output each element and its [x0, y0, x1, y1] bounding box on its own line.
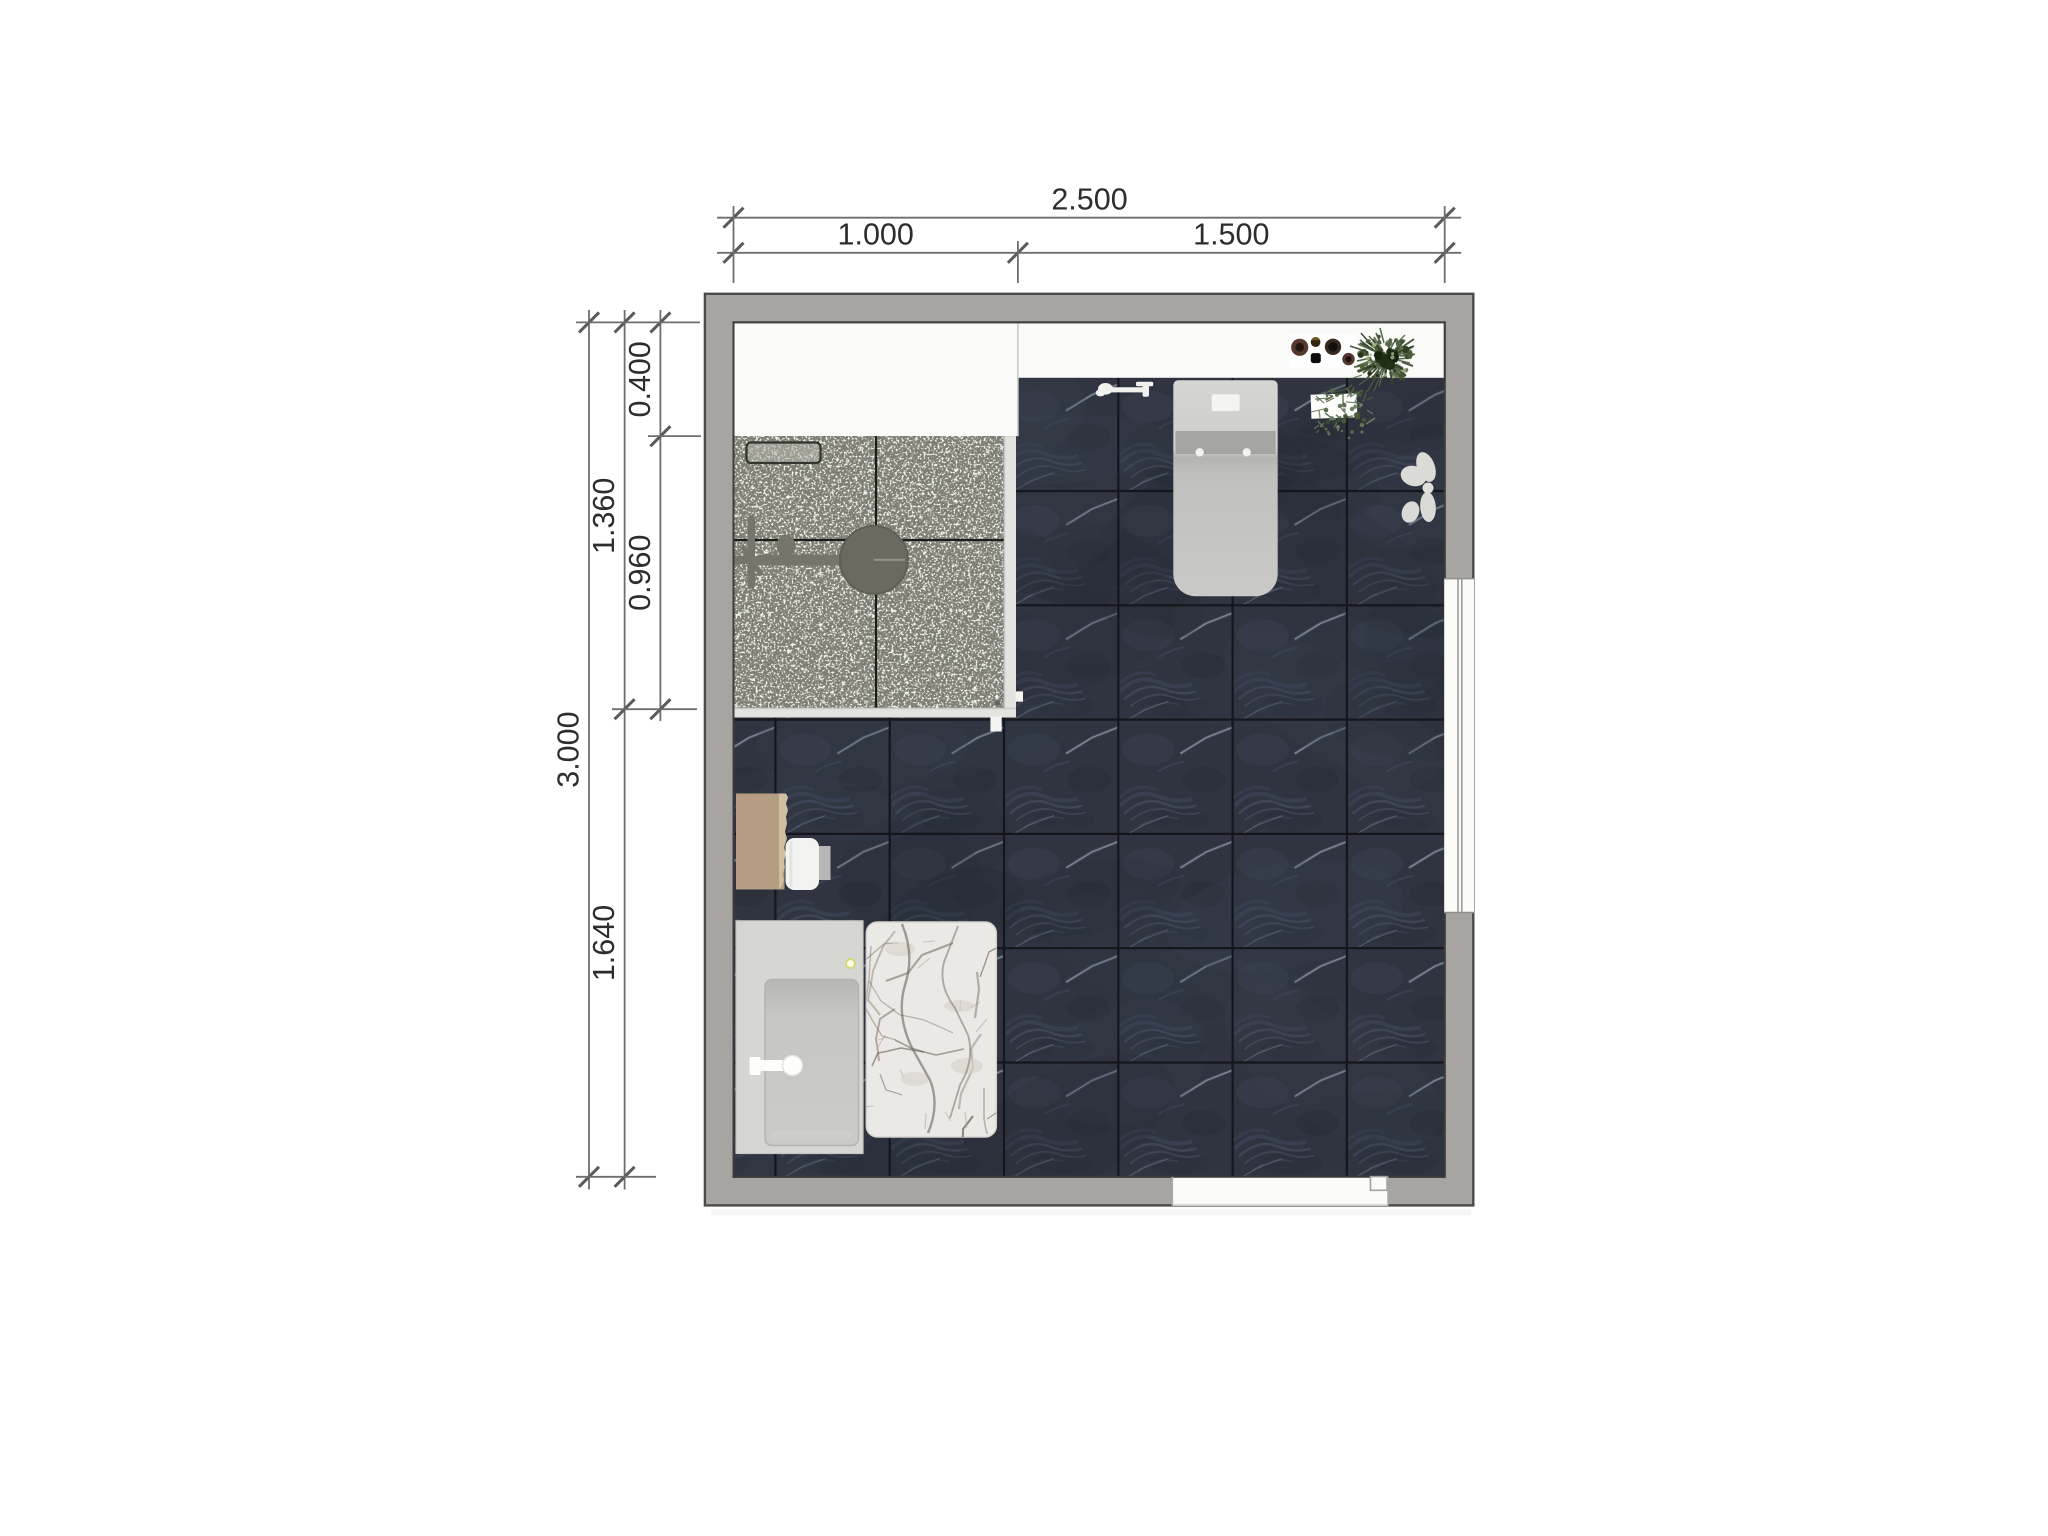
- svg-text:1.000: 1.000: [838, 218, 914, 252]
- svg-text:1.640: 1.640: [587, 905, 621, 981]
- svg-text:3.000: 3.000: [552, 711, 586, 787]
- svg-text:1.500: 1.500: [1193, 218, 1269, 252]
- svg-text:0.400: 0.400: [623, 341, 657, 417]
- svg-text:0.960: 0.960: [623, 535, 657, 611]
- svg-text:2.500: 2.500: [1051, 183, 1127, 217]
- svg-text:1.360: 1.360: [587, 478, 621, 554]
